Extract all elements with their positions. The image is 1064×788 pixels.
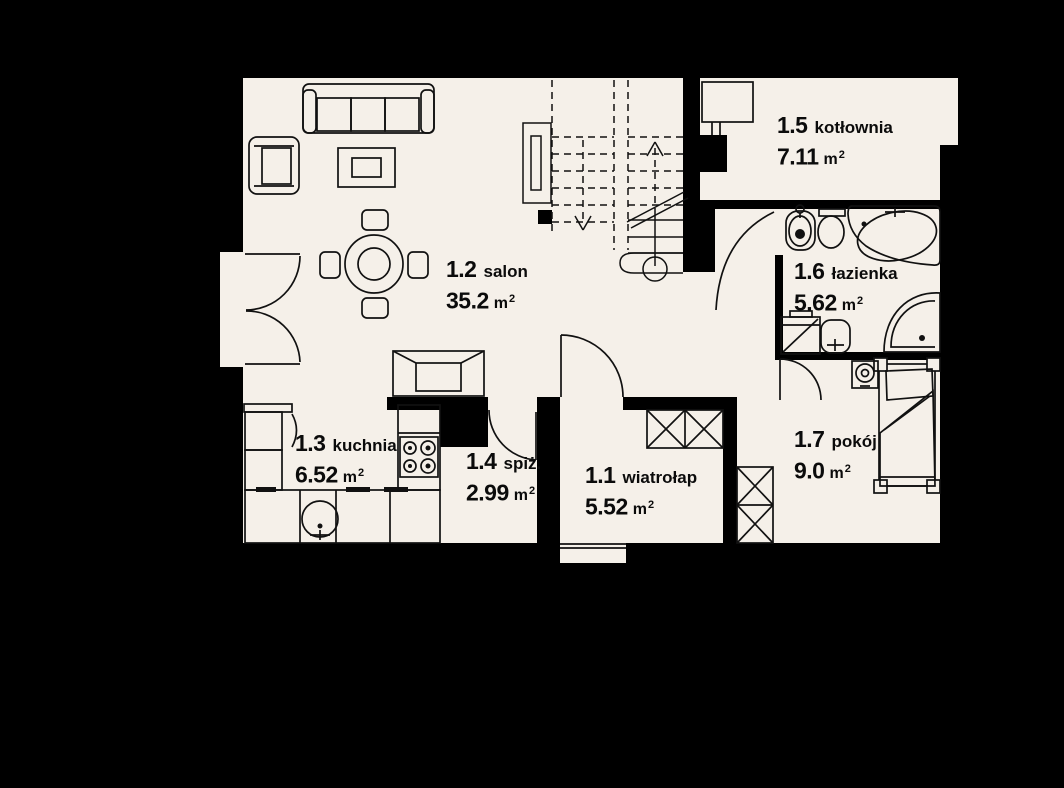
furnace-block [700, 135, 727, 172]
room-label-spizarnia: 1.4spiż. 2.99m2 [466, 448, 541, 509]
room-area: 35.2 [446, 287, 489, 313]
room-name: pokój [831, 432, 876, 451]
room-name: łazienka [831, 264, 897, 283]
room-label-kotlownia: 1.5kotłownia 7.11m2 [777, 112, 893, 173]
room-label-lazienka: 1.6łazienka 5.62m2 [794, 258, 898, 319]
area-unit: m2 [842, 297, 863, 314]
room-name: kuchnia [332, 436, 396, 455]
room-label-salon: 1.2salon 35.2m2 [446, 256, 528, 317]
room-area: 2.99 [466, 479, 509, 505]
room-label-pokoj: 1.7pokój 9.0m2 [794, 426, 877, 487]
room-name: wiatrołap [622, 468, 697, 487]
area-unit: m2 [829, 465, 850, 482]
room-area: 6.52 [295, 461, 338, 487]
room-label-wiatrolap: 1.1wiatrołap 5.52m2 [585, 462, 697, 523]
room-number: 1.4 [466, 448, 496, 474]
room-area: 5.62 [794, 289, 837, 315]
room-floor-boiler-tab [940, 78, 958, 145]
room-number: 1.6 [794, 258, 824, 284]
room-name: spiż. [503, 454, 541, 473]
room-area: 7.11 [777, 143, 819, 169]
floor-plan: 1.1wiatrołap 5.52m2 1.2salon 35.2m2 1.3k… [0, 0, 1064, 788]
room-name: kotłownia [814, 118, 892, 137]
room-area: 5.52 [585, 493, 628, 519]
area-unit: m2 [633, 501, 654, 518]
area-unit: m2 [824, 151, 845, 168]
area-unit: m2 [494, 295, 515, 312]
room-label-kuchnia: 1.3kuchnia 6.52m2 [295, 430, 397, 491]
room-number: 1.5 [777, 112, 807, 138]
radiator [523, 123, 551, 203]
room-number: 1.1 [585, 462, 615, 488]
room-number: 1.7 [794, 426, 824, 452]
room-number: 1.3 [295, 430, 325, 456]
room-number: 1.2 [446, 256, 476, 282]
room-floor-hall-bath-bedroom [683, 200, 940, 543]
room-name: salon [483, 262, 527, 281]
floor-plan-drawing [0, 0, 1064, 788]
double-door-opening [220, 252, 300, 367]
entrance-step [560, 543, 626, 563]
area-unit: m2 [514, 487, 535, 504]
chimney-block [538, 210, 552, 224]
area-unit: m2 [343, 469, 364, 486]
counter-handle [256, 487, 276, 492]
room-area: 9.0 [794, 457, 824, 483]
